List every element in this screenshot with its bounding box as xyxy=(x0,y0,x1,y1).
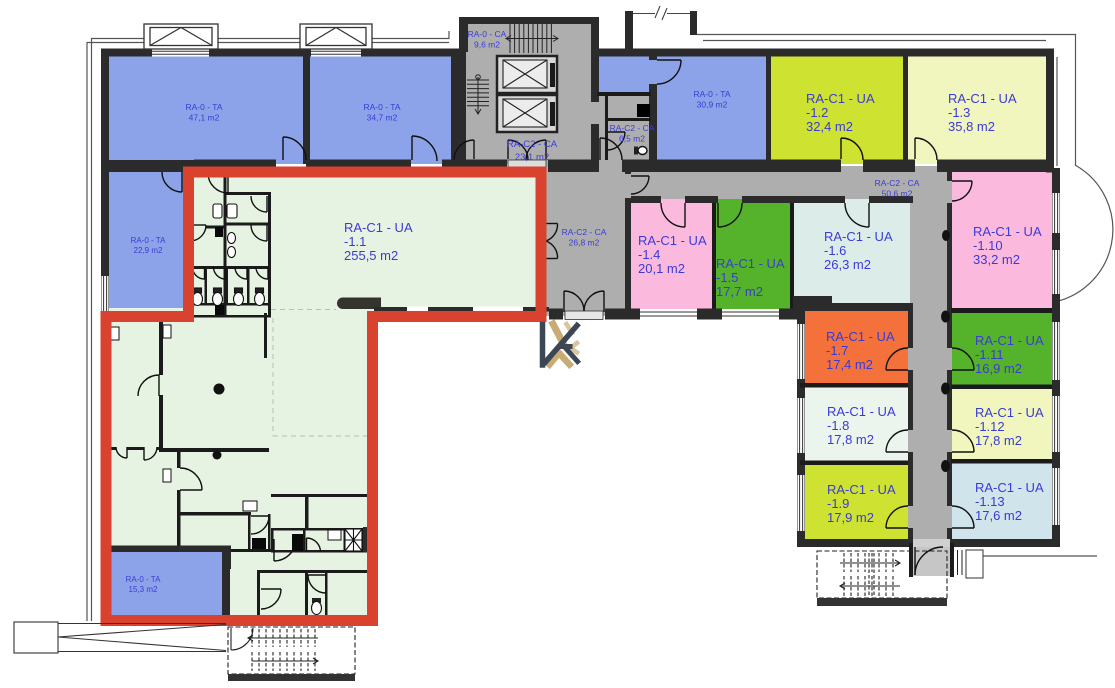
svg-text:RA-0 - TA34,7 m2: RA-0 - TA34,7 m2 xyxy=(364,102,401,122)
svg-text:RA-0 - TA15,3 m2: RA-0 - TA15,3 m2 xyxy=(126,575,161,594)
svg-text:RA-0 - TA22,9 m2: RA-0 - TA22,9 m2 xyxy=(131,236,166,255)
svg-text:RA-0 - TA30,9 m2: RA-0 - TA30,9 m2 xyxy=(694,89,731,109)
svg-text:RA-0 - TA47,1 m2: RA-0 - TA47,1 m2 xyxy=(186,102,223,122)
